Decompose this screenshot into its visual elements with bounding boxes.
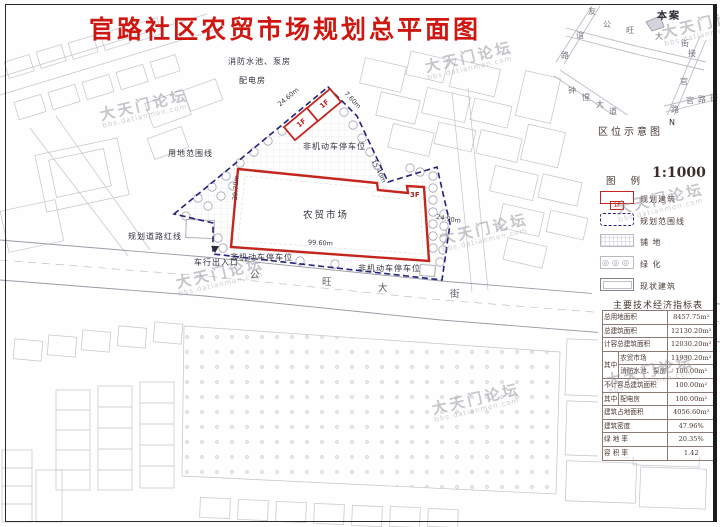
- legend-label-paving: 铺 地: [640, 237, 662, 248]
- road-guanlu-1: 官: [686, 97, 694, 105]
- road-zhongxing-4: 道: [609, 108, 617, 116]
- scale-label: 1:1000: [652, 165, 706, 181]
- road-youyi-3: 路: [561, 52, 569, 60]
- site-boundary-label: 用地范围线: [168, 150, 213, 158]
- street-char-3: 大: [378, 284, 388, 294]
- dim-building-depth: 39.70m: [232, 175, 240, 200]
- power-room-label: 配电房: [239, 77, 266, 85]
- parking-top-label: 非机动车停车位: [303, 143, 366, 151]
- street-char-2: 旺: [322, 278, 332, 288]
- road-gongwang-2: 旺: [626, 27, 634, 35]
- road-redline-label: 规划道路红线: [128, 233, 182, 241]
- legend-label-existing: 现状建筑: [640, 281, 676, 292]
- table-row: 绿 地 率20.35%: [603, 433, 715, 447]
- market-floor-label: 3F: [410, 192, 420, 199]
- legend-label-greening: 绿 化: [640, 259, 662, 270]
- table-row: 建筑占地面积4056.60m²: [603, 406, 715, 420]
- road-youyi-2: 谊: [576, 32, 584, 40]
- fire-pump-label: 消防水池、泵房: [228, 58, 291, 66]
- parking-bottom-right-label: 非机动车停车位: [358, 265, 421, 273]
- plan-sheet: 官路社区农贸市场规划总平面图 消防水池、泵房 配电房 用地范围线 规划道路红线 …: [0, 0, 720, 527]
- service-building-2: [420, 265, 436, 277]
- legend-label-boundary: 规划范围线: [640, 216, 685, 227]
- site-area: [174, 87, 450, 280]
- north-label: N: [669, 118, 675, 127]
- table-row: 总用地面积8457.75m²: [603, 311, 715, 325]
- table-row: 容 积 率1.42: [603, 446, 715, 460]
- road-zhongxing-2: 惺: [582, 94, 590, 102]
- table-row: 建筑密度47.96%: [603, 419, 715, 433]
- legend-title: 图 例: [606, 173, 646, 187]
- road-zhongxing-1: 钟: [568, 87, 576, 95]
- road-gongwang-1: 公: [603, 21, 611, 29]
- road-jieguan-3: 路: [671, 106, 679, 114]
- table-row: 其中配电房100.00m²: [603, 392, 715, 406]
- table-row: 计容总建筑面积12030.20m²: [603, 338, 715, 352]
- road-jieguan-2: 官: [680, 78, 688, 86]
- dim-building-width: 99.60m: [308, 239, 333, 247]
- sheet-border-right: [713, 4, 717, 522]
- location-map-title: 区位示意图: [598, 123, 663, 138]
- road-zhongxing-3: 大: [596, 101, 604, 109]
- table-row: 总建筑面积12130.20m²: [603, 324, 715, 338]
- legend-swatch-paving: [600, 234, 634, 247]
- street-char-4: 街: [450, 290, 460, 300]
- legend-swatch-existing: [600, 278, 634, 291]
- road-jieguan-1: 接: [688, 50, 696, 58]
- page-title: 官路社区农贸市场规划总平面图: [80, 10, 490, 46]
- road-guanlu-2: 路: [698, 96, 706, 104]
- legend-swatch-greening: ◎◎◎: [600, 256, 634, 269]
- road-youyi-1: 友: [588, 8, 596, 16]
- market-label: 农贸市场: [303, 211, 349, 221]
